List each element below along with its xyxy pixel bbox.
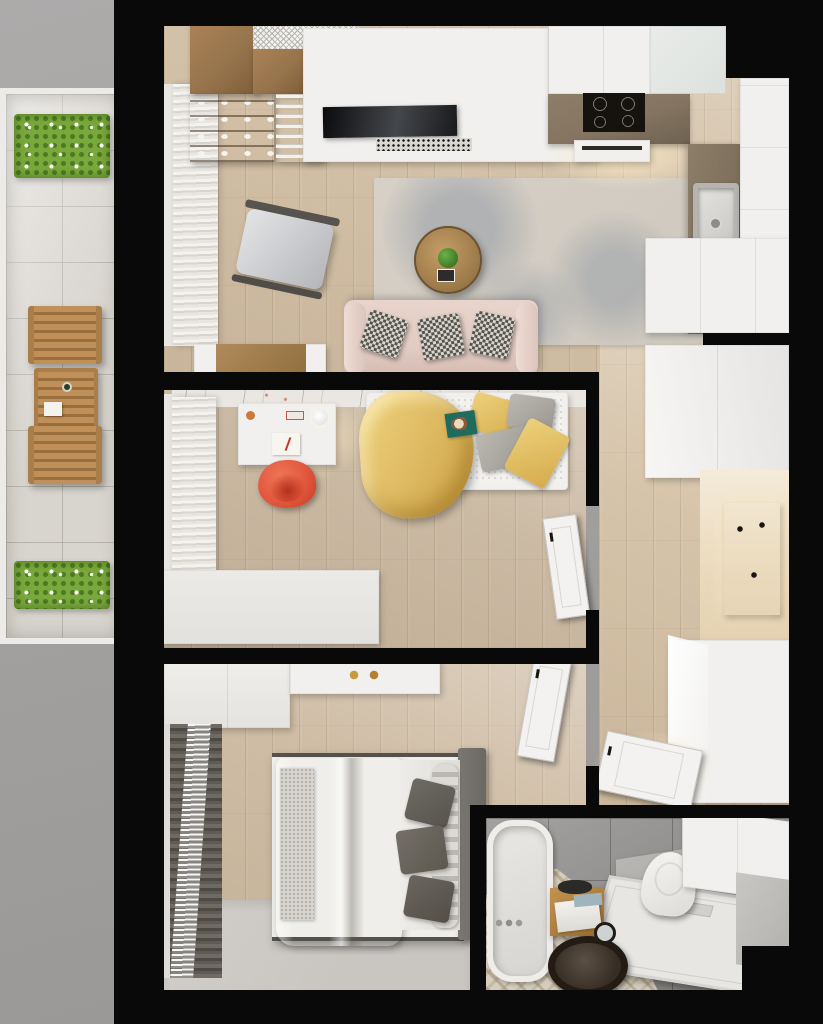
- wall-top: [114, 0, 726, 26]
- bedroom-curtains: [170, 724, 222, 978]
- bed-textured-runner: [280, 768, 314, 920]
- oven: [574, 140, 650, 162]
- table-book: [44, 402, 62, 416]
- kitchen-upper-cabinets: [548, 26, 650, 94]
- wall-living-office: [164, 372, 598, 390]
- office-desk-pen: [285, 437, 292, 451]
- office-red-chair-seat: [269, 472, 306, 503]
- bathtub-faucet: [494, 918, 524, 928]
- entry-coat-panel: [724, 503, 780, 615]
- sofa-pillow-2: [417, 313, 466, 362]
- kitchen-glass-cabinet: [650, 26, 726, 94]
- sofa-pillow-3: [468, 310, 516, 359]
- bedroom-desk-items: [348, 668, 384, 682]
- office-curtains: [172, 397, 216, 577]
- living-open-shelf-unit: [190, 94, 274, 162]
- hall-wardrobe-seam: [717, 345, 718, 478]
- wall-hall-segment-b: [586, 610, 599, 664]
- bed-pillow-3: [403, 874, 456, 923]
- tv-screen: [323, 105, 458, 138]
- office-desk-card: [286, 411, 304, 420]
- outdoor-chair-top: [28, 306, 102, 364]
- outdoor-chair-bottom: [28, 426, 102, 484]
- bathroom-round-tray: [548, 936, 628, 996]
- wall-hall-segment-a: [586, 372, 599, 506]
- office-teal-book: [444, 410, 477, 438]
- living-desk-wood-top: [216, 344, 306, 374]
- balcony: [0, 88, 120, 644]
- wall-bedroom-bathroom: [470, 805, 486, 1024]
- living-wood-hutch: [253, 48, 305, 94]
- table-bottle: [64, 384, 70, 390]
- bathroom-hand-mirror: [594, 922, 616, 944]
- bedroom-wardrobe: [164, 660, 290, 728]
- wall-office-bedroom: [164, 648, 598, 664]
- sofa-pillow-1: [359, 309, 409, 359]
- coffee-table-plant: [438, 248, 458, 268]
- office-desk: [238, 403, 336, 465]
- wall-right: [789, 78, 823, 946]
- wall-bathroom-top: [486, 805, 789, 818]
- wall-left: [114, 0, 164, 1024]
- kitchen-lower-cabinets: [645, 238, 789, 333]
- office-teal-book-art: [450, 416, 472, 432]
- cooktop: [583, 93, 645, 132]
- bathtub: [487, 820, 553, 982]
- office-sideboard: [160, 570, 379, 644]
- floor-plan-canvas: [0, 0, 823, 1024]
- oven-handle-slot: [582, 146, 642, 150]
- planter-box-bottom: [14, 561, 110, 609]
- wall-top-right-block: [726, 0, 823, 78]
- tv-media-mat: [376, 138, 472, 151]
- office-desk-lamp: [312, 409, 328, 425]
- sofa-armrest-right: [516, 302, 538, 374]
- bed-pillow-2: [395, 825, 449, 875]
- sink-basin: [698, 188, 734, 242]
- armchair: [228, 199, 341, 307]
- stool-towel-blue: [574, 893, 603, 907]
- wall-bottom: [164, 990, 744, 1024]
- planter-box-top: [14, 114, 110, 178]
- bedroom-wardrobe-seam: [227, 660, 228, 728]
- office-desk-open-book: [272, 433, 300, 455]
- sink-faucet: [711, 219, 720, 228]
- wall-bottom-right-block: [742, 946, 823, 1024]
- round-coffee-table: [414, 226, 482, 294]
- wall-kitchen-hall-stub: [703, 333, 789, 345]
- living-desk: [194, 344, 326, 374]
- stool-towel-dark: [558, 880, 592, 894]
- coffee-table-book: [438, 270, 454, 281]
- sofa: [344, 300, 538, 376]
- living-wood-wardrobe: [190, 22, 258, 94]
- hall-wardrobe: [645, 345, 789, 478]
- outdoor-table: [34, 368, 98, 432]
- office-desk-flower: [246, 411, 255, 420]
